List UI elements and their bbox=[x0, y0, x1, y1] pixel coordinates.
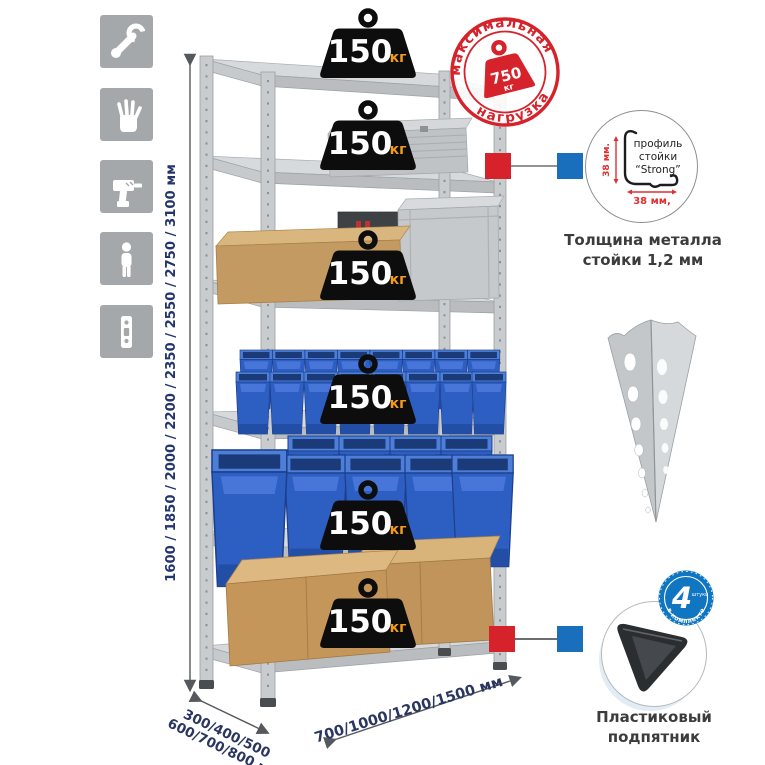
svg-text:“Strong”: “Strong” bbox=[635, 164, 681, 176]
profile-caption: Толщина металла стойки 1,2 мм bbox=[563, 231, 723, 271]
profile-label: профиль стойки “Strong” bbox=[634, 138, 683, 176]
foot-caption: Пластиковый подпятник bbox=[578, 708, 730, 748]
callout-blue-marker bbox=[557, 153, 583, 179]
callout-profile bbox=[485, 153, 583, 179]
angle-post-image bbox=[596, 312, 706, 530]
svg-text:150: 150 bbox=[328, 34, 393, 70]
dimension-height: 1600 / 1850 / 2000 / 2200 / 2350 / 2550 … bbox=[164, 60, 190, 686]
svg-text:150: 150 bbox=[328, 506, 393, 542]
svg-text:кг: кг bbox=[390, 396, 407, 412]
profile-dim-vertical: 38 мм. bbox=[602, 143, 612, 177]
profile-dim-horizontal: 38 мм, bbox=[633, 196, 671, 207]
svg-text:кг: кг bbox=[390, 50, 407, 66]
callout-red-marker bbox=[485, 153, 511, 179]
shelf-load-badge: 150 кг bbox=[320, 103, 416, 170]
svg-text:кг: кг bbox=[390, 272, 407, 288]
svg-text:кг: кг bbox=[390, 620, 407, 636]
profile-detail-circle: 38 мм. 38 мм, профиль стойки “Strong” bbox=[585, 110, 698, 223]
dimension-depth: 300/400/500 600/700/800 мм bbox=[165, 699, 288, 765]
callout-red-marker bbox=[489, 626, 515, 652]
dimension-width: 700/1000/1200/1500 мм bbox=[313, 674, 516, 747]
svg-text:4: 4 bbox=[671, 581, 692, 615]
svg-text:150: 150 bbox=[328, 126, 393, 162]
shelf-load-badge: 150 кг bbox=[320, 11, 416, 78]
width-options-label: 700/1000/1200/1500 мм bbox=[313, 674, 505, 747]
product-infographic: 150 кг 150 кг 150 кг 150 кг bbox=[0, 0, 765, 765]
svg-text:150: 150 bbox=[328, 604, 393, 640]
svg-text:150: 150 bbox=[328, 256, 393, 292]
callout-blue-marker bbox=[557, 626, 583, 652]
svg-text:кг: кг bbox=[390, 142, 407, 158]
callout-foot bbox=[489, 626, 583, 652]
svg-text:штуки: штуки bbox=[692, 592, 709, 598]
svg-text:профиль: профиль bbox=[634, 138, 683, 150]
included-count-badge: 4 штуки в комплекте bbox=[657, 569, 715, 627]
height-options-label: 1600 / 1850 / 2000 / 2200 / 2350 / 2550 … bbox=[164, 164, 179, 582]
svg-text:кг: кг bbox=[390, 522, 407, 538]
svg-text:стойки: стойки bbox=[639, 151, 677, 163]
svg-text:150: 150 bbox=[328, 380, 393, 416]
silver-case bbox=[398, 196, 504, 301]
